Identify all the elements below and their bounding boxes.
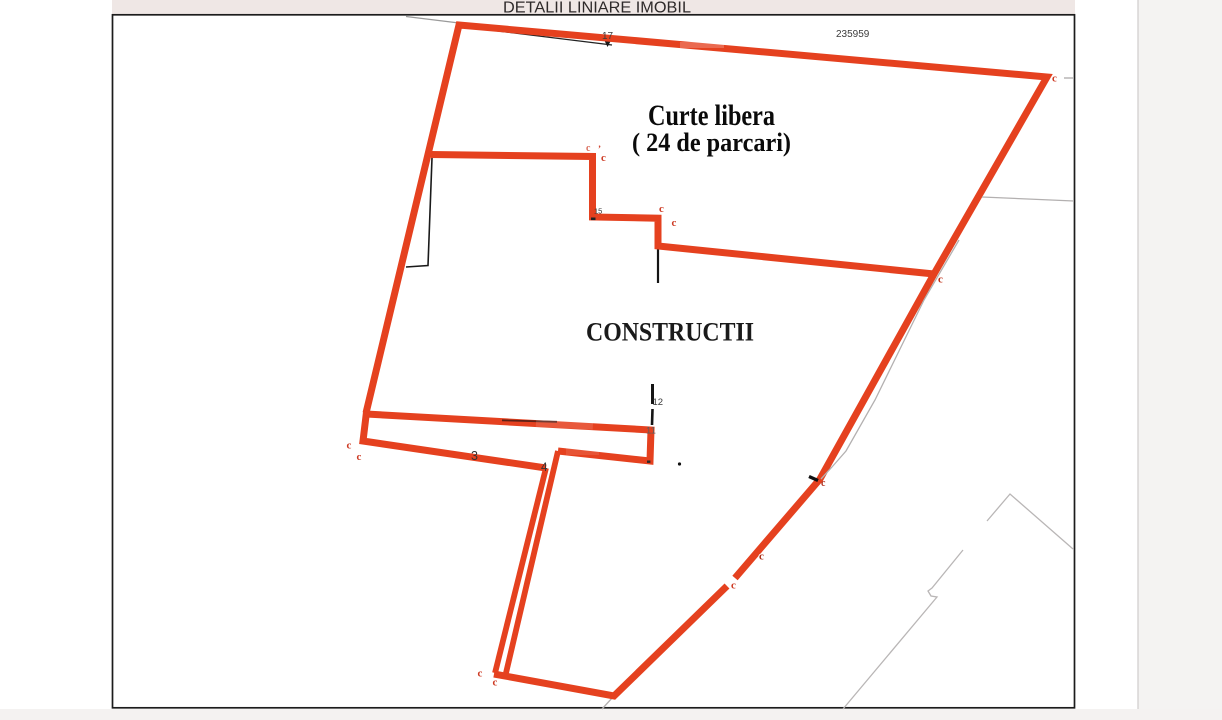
svg-text:( 24 de parcari): ( 24 de parcari) [632, 128, 791, 157]
svg-text:DETALII LINIARE IMOBIL: DETALII LINIARE IMOBIL [503, 0, 691, 16]
svg-text:3: 3 [471, 449, 478, 463]
svg-text:4: 4 [541, 462, 548, 474]
svg-text:c: c [478, 668, 483, 680]
svg-text:c: c [493, 677, 498, 689]
svg-text:c: c [1052, 73, 1057, 85]
svg-text:c: c [586, 143, 591, 154]
svg-text:c: c [659, 203, 664, 215]
svg-text:c: c [731, 580, 736, 592]
svg-text:235959: 235959 [836, 29, 870, 40]
svg-text:CONSTRUCTII: CONSTRUCTII [586, 318, 754, 347]
svg-text:12: 12 [653, 397, 664, 408]
svg-text:c: c [759, 551, 764, 563]
svg-text:17: 17 [602, 31, 614, 42]
svg-text:c: c [938, 274, 943, 286]
svg-text:c: c [347, 440, 352, 452]
svg-text:c: c [672, 217, 677, 229]
svg-text:c: c [357, 451, 362, 463]
svg-text:c: c [821, 478, 826, 489]
svg-text:11: 11 [646, 426, 656, 437]
svg-text:c: c [601, 152, 606, 164]
svg-text:15: 15 [594, 207, 602, 216]
